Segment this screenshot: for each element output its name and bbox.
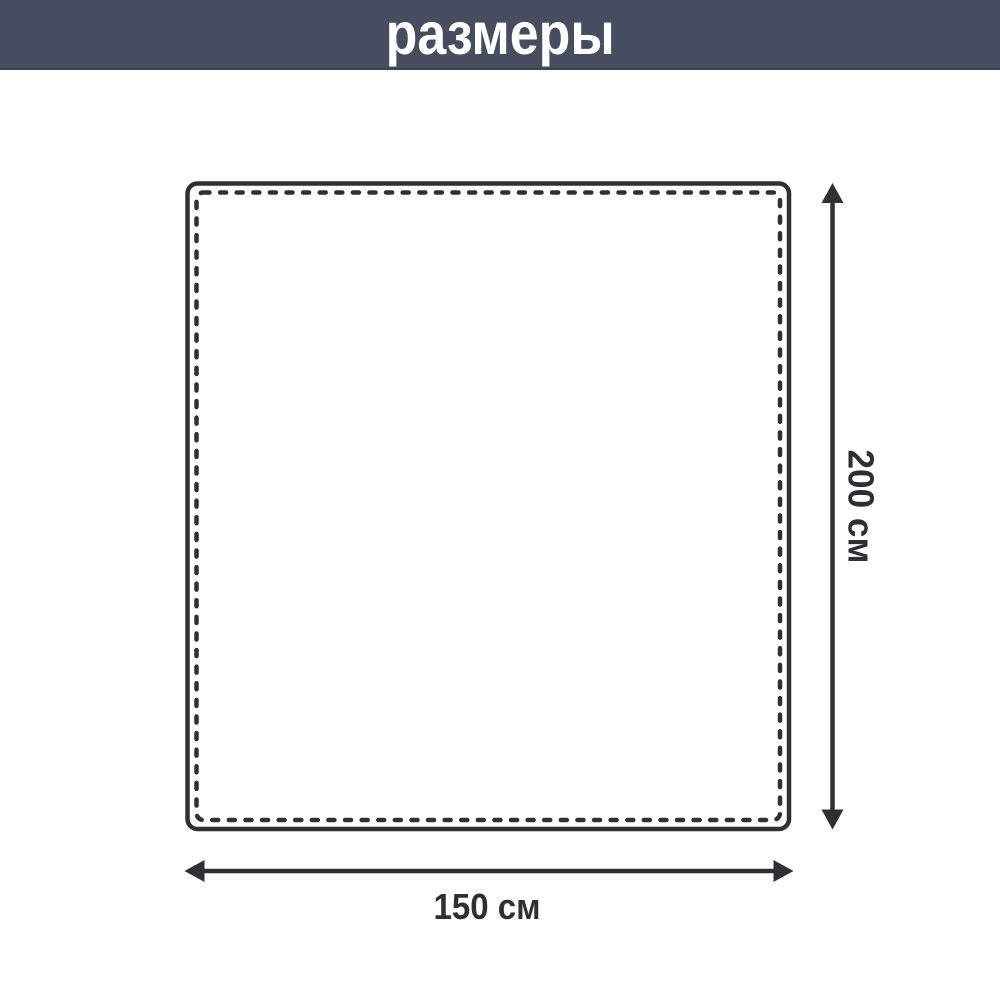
svg-text:150 см: 150 см — [434, 886, 541, 927]
svg-text:200 см: 200 см — [840, 450, 881, 564]
